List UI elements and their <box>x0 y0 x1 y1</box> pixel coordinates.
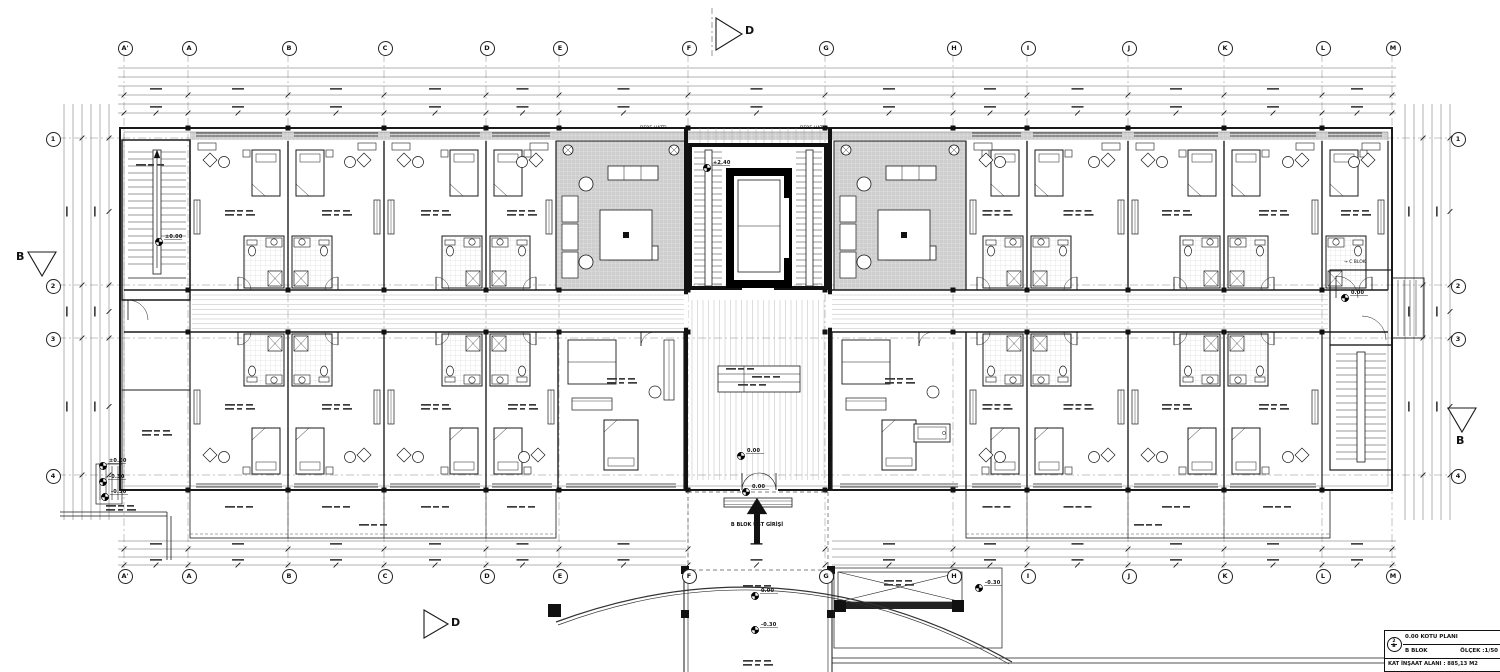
grid-bubble-top-E: E <box>553 41 568 56</box>
grid-bubble-bottom-K: K <box>1218 569 1233 584</box>
grid-bubble-top-K: K <box>1218 41 1233 56</box>
level-marker-3: 0.00 <box>761 588 774 594</box>
level-marker-10: -0.30 <box>111 489 126 495</box>
grid-bubble-bottom-I: I <box>1021 569 1036 584</box>
grid-bubble-top-H: H <box>947 41 962 56</box>
level-marker-2: 0.00 <box>747 448 760 454</box>
grid-bubble-bottom-C: C <box>378 569 393 584</box>
grid-bubble-left-1: 1 <box>46 132 61 147</box>
level-marker-1: 0.00 <box>752 484 765 490</box>
drawing-ref-bubble: 2 B <box>1385 631 1403 658</box>
grid-bubble-top-B: B <box>282 41 297 56</box>
grid-bubble-top-I: I <box>1021 41 1036 56</box>
level-marker-5: -0.30 <box>985 580 1000 586</box>
grid-bubble-bottom-M: M <box>1386 569 1401 584</box>
grid-bubble-right-2: 2 <box>1451 279 1466 294</box>
grid-bubble-left-4: 4 <box>46 469 61 484</box>
grid-bubble-bottom-B: B <box>282 569 297 584</box>
level-marker-8: ±0.00 <box>109 458 127 464</box>
level-marker-0: +2.40 <box>713 160 731 166</box>
grid-bubble-top-G: G <box>819 41 834 56</box>
grid-bubble-bottom-H: H <box>947 569 962 584</box>
title-block: 2 B 0.00 KOTU PLANI B BLOK ÖLÇEK :1/50 K… <box>1384 630 1500 672</box>
grid-bubble-top-M: M <box>1386 41 1401 56</box>
block-name: B BLOK <box>1405 649 1428 655</box>
grid-bubble-bottom-E: E <box>553 569 568 584</box>
ref-block: B <box>1392 645 1395 650</box>
level-marker-7: ±0.00 <box>165 234 183 240</box>
level-marker-4: -0.30 <box>761 622 776 628</box>
floorplan-canvas: A'A'AABBCCDDEEFFGGHHIIJJKKLLMM11223344+2… <box>0 0 1500 672</box>
section-label-D-top: D <box>745 24 754 37</box>
grid-bubble-right-3: 3 <box>1451 332 1466 347</box>
level-marker-9: -0.30 <box>109 474 124 480</box>
grid-bubble-bottom-A': A' <box>118 569 133 584</box>
grid-bubble-bottom-J: J <box>1122 569 1137 584</box>
annotation-1: → C BLOK <box>1344 260 1366 265</box>
grid-bubble-bottom-G: G <box>819 569 834 584</box>
grid-bubble-bottom-L: L <box>1316 569 1331 584</box>
grid-bubble-top-J: J <box>1122 41 1137 56</box>
section-label-B-right: B <box>1456 434 1464 447</box>
text-overlay: A'A'AABBCCDDEEFFGGHHIIJJKKLLMM11223344+2… <box>0 0 1500 672</box>
grid-bubble-top-L: L <box>1316 41 1331 56</box>
grid-bubble-top-C: C <box>378 41 393 56</box>
area-label: KAT İNŞAAT ALANI : 885,13 M2 <box>1385 659 1500 671</box>
grid-bubble-bottom-D: D <box>480 569 495 584</box>
annotation-3: DERE HATTI <box>800 126 827 131</box>
title-block-top: 2 B 0.00 KOTU PLANI B BLOK ÖLÇEK :1/50 <box>1385 631 1500 659</box>
level-marker-6: 0.00 <box>1351 290 1364 296</box>
section-label-D-bottom: D <box>451 616 460 629</box>
grid-bubble-left-3: 3 <box>46 332 61 347</box>
grid-bubble-bottom-A: A <box>182 569 197 584</box>
grid-bubble-top-D: D <box>480 41 495 56</box>
grid-bubble-right-4: 4 <box>1451 469 1466 484</box>
grid-bubble-left-2: 2 <box>46 279 61 294</box>
grid-bubble-top-F: F <box>682 41 697 56</box>
scale-label: ÖLÇEK :1/50 <box>1460 649 1498 655</box>
annotation-2: DERE HATTI <box>640 126 667 131</box>
annotation-0: B BLOK ÜST GİRİŞİ <box>731 522 783 528</box>
plan-title: 0.00 KOTU PLANI <box>1403 631 1500 645</box>
section-label-B-left: B <box>16 250 24 263</box>
grid-bubble-top-A': A' <box>118 41 133 56</box>
grid-bubble-top-A: A <box>182 41 197 56</box>
grid-bubble-right-1: 1 <box>1451 132 1466 147</box>
grid-bubble-bottom-F: F <box>682 569 697 584</box>
